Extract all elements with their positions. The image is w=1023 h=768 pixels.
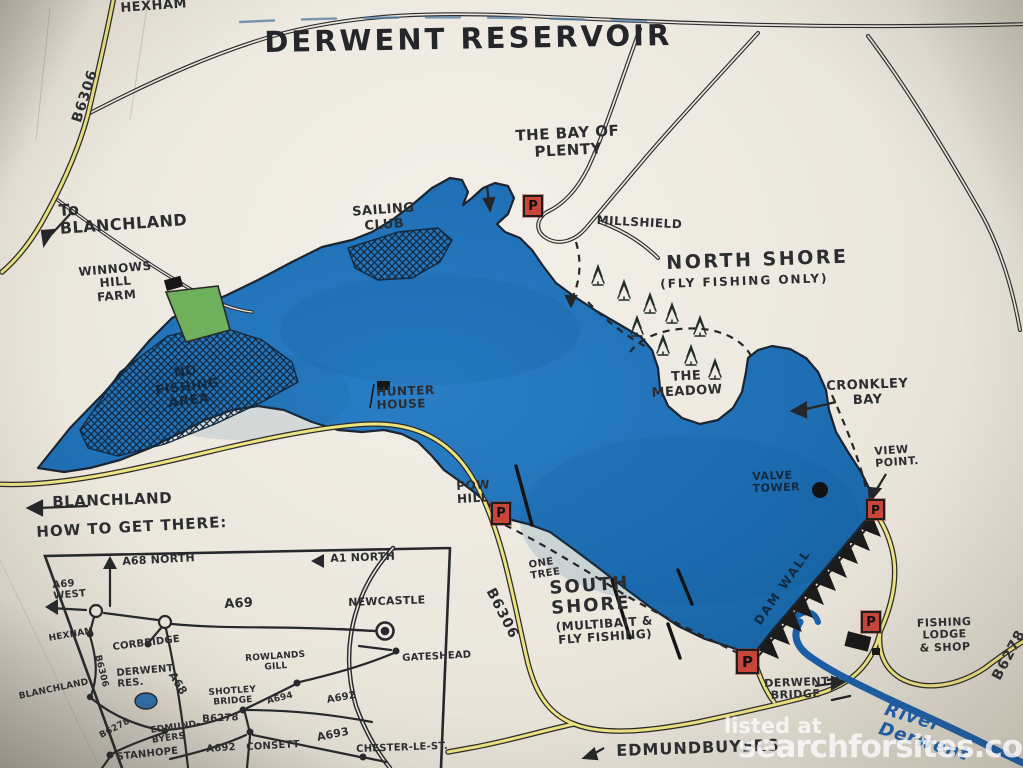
inset-label-a69-west: A69 WEST xyxy=(52,577,87,602)
parking-icon-dam-top: P xyxy=(866,499,885,520)
inset-label-rowlands-gill: ROWLANDS GILL xyxy=(244,650,307,674)
inset-label-stanhope: STANHOPE xyxy=(116,746,179,764)
label-edmundbuyers: EDMUNDBUYERS xyxy=(616,736,780,760)
inset-label-a694: A694 xyxy=(266,691,294,707)
label-cronkley-bay: CRONKLEY BAY xyxy=(826,377,909,409)
label-bay-of-plenty: THE BAY OF PLENTY xyxy=(512,122,624,161)
inset-label-a692-east: A692 xyxy=(326,690,357,706)
label-north-shore-sub: (FLY FISHING ONLY) xyxy=(660,272,829,291)
inset-label-corbridge: CORBRIDGE xyxy=(112,634,181,653)
inset-label-b6278-mid: B6278 xyxy=(202,712,239,725)
label-dam-wall: DAM WALL xyxy=(752,547,814,627)
label-sailing-club: SAILING CLUB xyxy=(348,201,420,235)
label-river-derwent: River Derwent xyxy=(876,700,1017,768)
label-the-meadow: THE MEADOW xyxy=(648,368,725,401)
label-derwent-bridge: DERWENT BRIDGE xyxy=(764,676,827,703)
parking-icon-pow-hill: P xyxy=(491,502,511,525)
label-millshield: MILLSHIELD xyxy=(596,214,682,232)
inset-label-a68-north: A68 NORTH xyxy=(122,552,195,568)
inset-label-a692-south: A692 xyxy=(206,742,236,755)
inset-label-a68: A68 xyxy=(166,670,189,697)
parking-icon-bay-of-plenty: P xyxy=(523,195,543,217)
inset-label-a693: A693 xyxy=(316,726,350,744)
label-pow-hill: POW HILL xyxy=(456,478,491,507)
inset-label-shotley-bridge: SHOTLEY BRIDGE xyxy=(208,685,257,708)
inset-label-blanchland: BLANCHLAND xyxy=(18,677,89,702)
label-hexham: HEXHAM xyxy=(120,0,188,17)
label-no-fishing-area: NO FISHING AREA xyxy=(150,361,225,413)
inset-label-a69: A69 xyxy=(224,596,253,612)
map-photo: HEXHAM B6306 DERWENT RESERVOIR THE BAY O… xyxy=(0,0,1023,768)
inset-label-edmundbyers: EDMUND- BYERS xyxy=(150,719,203,746)
label-to-blanchland: To BLANCHLAND xyxy=(58,193,188,238)
label-south-shore-sub: (MULTIBAIT & FLY FISHING) xyxy=(544,614,666,649)
inset-label-consett: CONSETT xyxy=(246,739,300,753)
inset-label-b6306: B6306 xyxy=(92,654,110,688)
label-b6306-nw: B6306 xyxy=(70,68,102,125)
map-title: DERWENT RESERVOIR xyxy=(264,19,673,59)
label-hunter-house: HUNTER HOUSE xyxy=(376,384,435,413)
parking-icon-fishing-lodge: P xyxy=(861,611,881,633)
label-north-shore: NORTH SHORE xyxy=(666,247,849,275)
inset-label-newcastle: NEWCASTLE xyxy=(348,594,426,609)
label-valve-tower: VALVE TOWER xyxy=(752,469,800,495)
inset-label-hexham: HEXHAM xyxy=(48,626,94,644)
label-south-shore: SOUTH SHORE xyxy=(534,572,647,620)
label-b6278-east: B6278 xyxy=(990,628,1023,684)
label-fishing-lodge: FISHING LODGE & SHOP xyxy=(912,616,977,655)
label-blanchland-west: BLANCHLAND xyxy=(52,490,172,511)
inset-label-chester-le-st: CHESTER-LE-ST. xyxy=(356,741,448,755)
parking-icon-dam-bottom: P xyxy=(736,649,759,674)
label-winnows-hill-farm: WINNOWS HILL FARM xyxy=(78,260,153,306)
inset-label-gateshead: GATESHEAD xyxy=(402,649,472,664)
map-labels: HEXHAM B6306 DERWENT RESERVOIR THE BAY O… xyxy=(0,0,1023,768)
inset-title: HOW TO GET THERE: xyxy=(36,514,228,541)
label-view-point: VIEW POINT. xyxy=(874,443,919,471)
inset-label-a1-north: A1 NORTH xyxy=(330,551,395,566)
label-b6306-south: B6306 xyxy=(482,586,521,642)
inset-label-b6278-sw: B6278 xyxy=(98,717,132,741)
